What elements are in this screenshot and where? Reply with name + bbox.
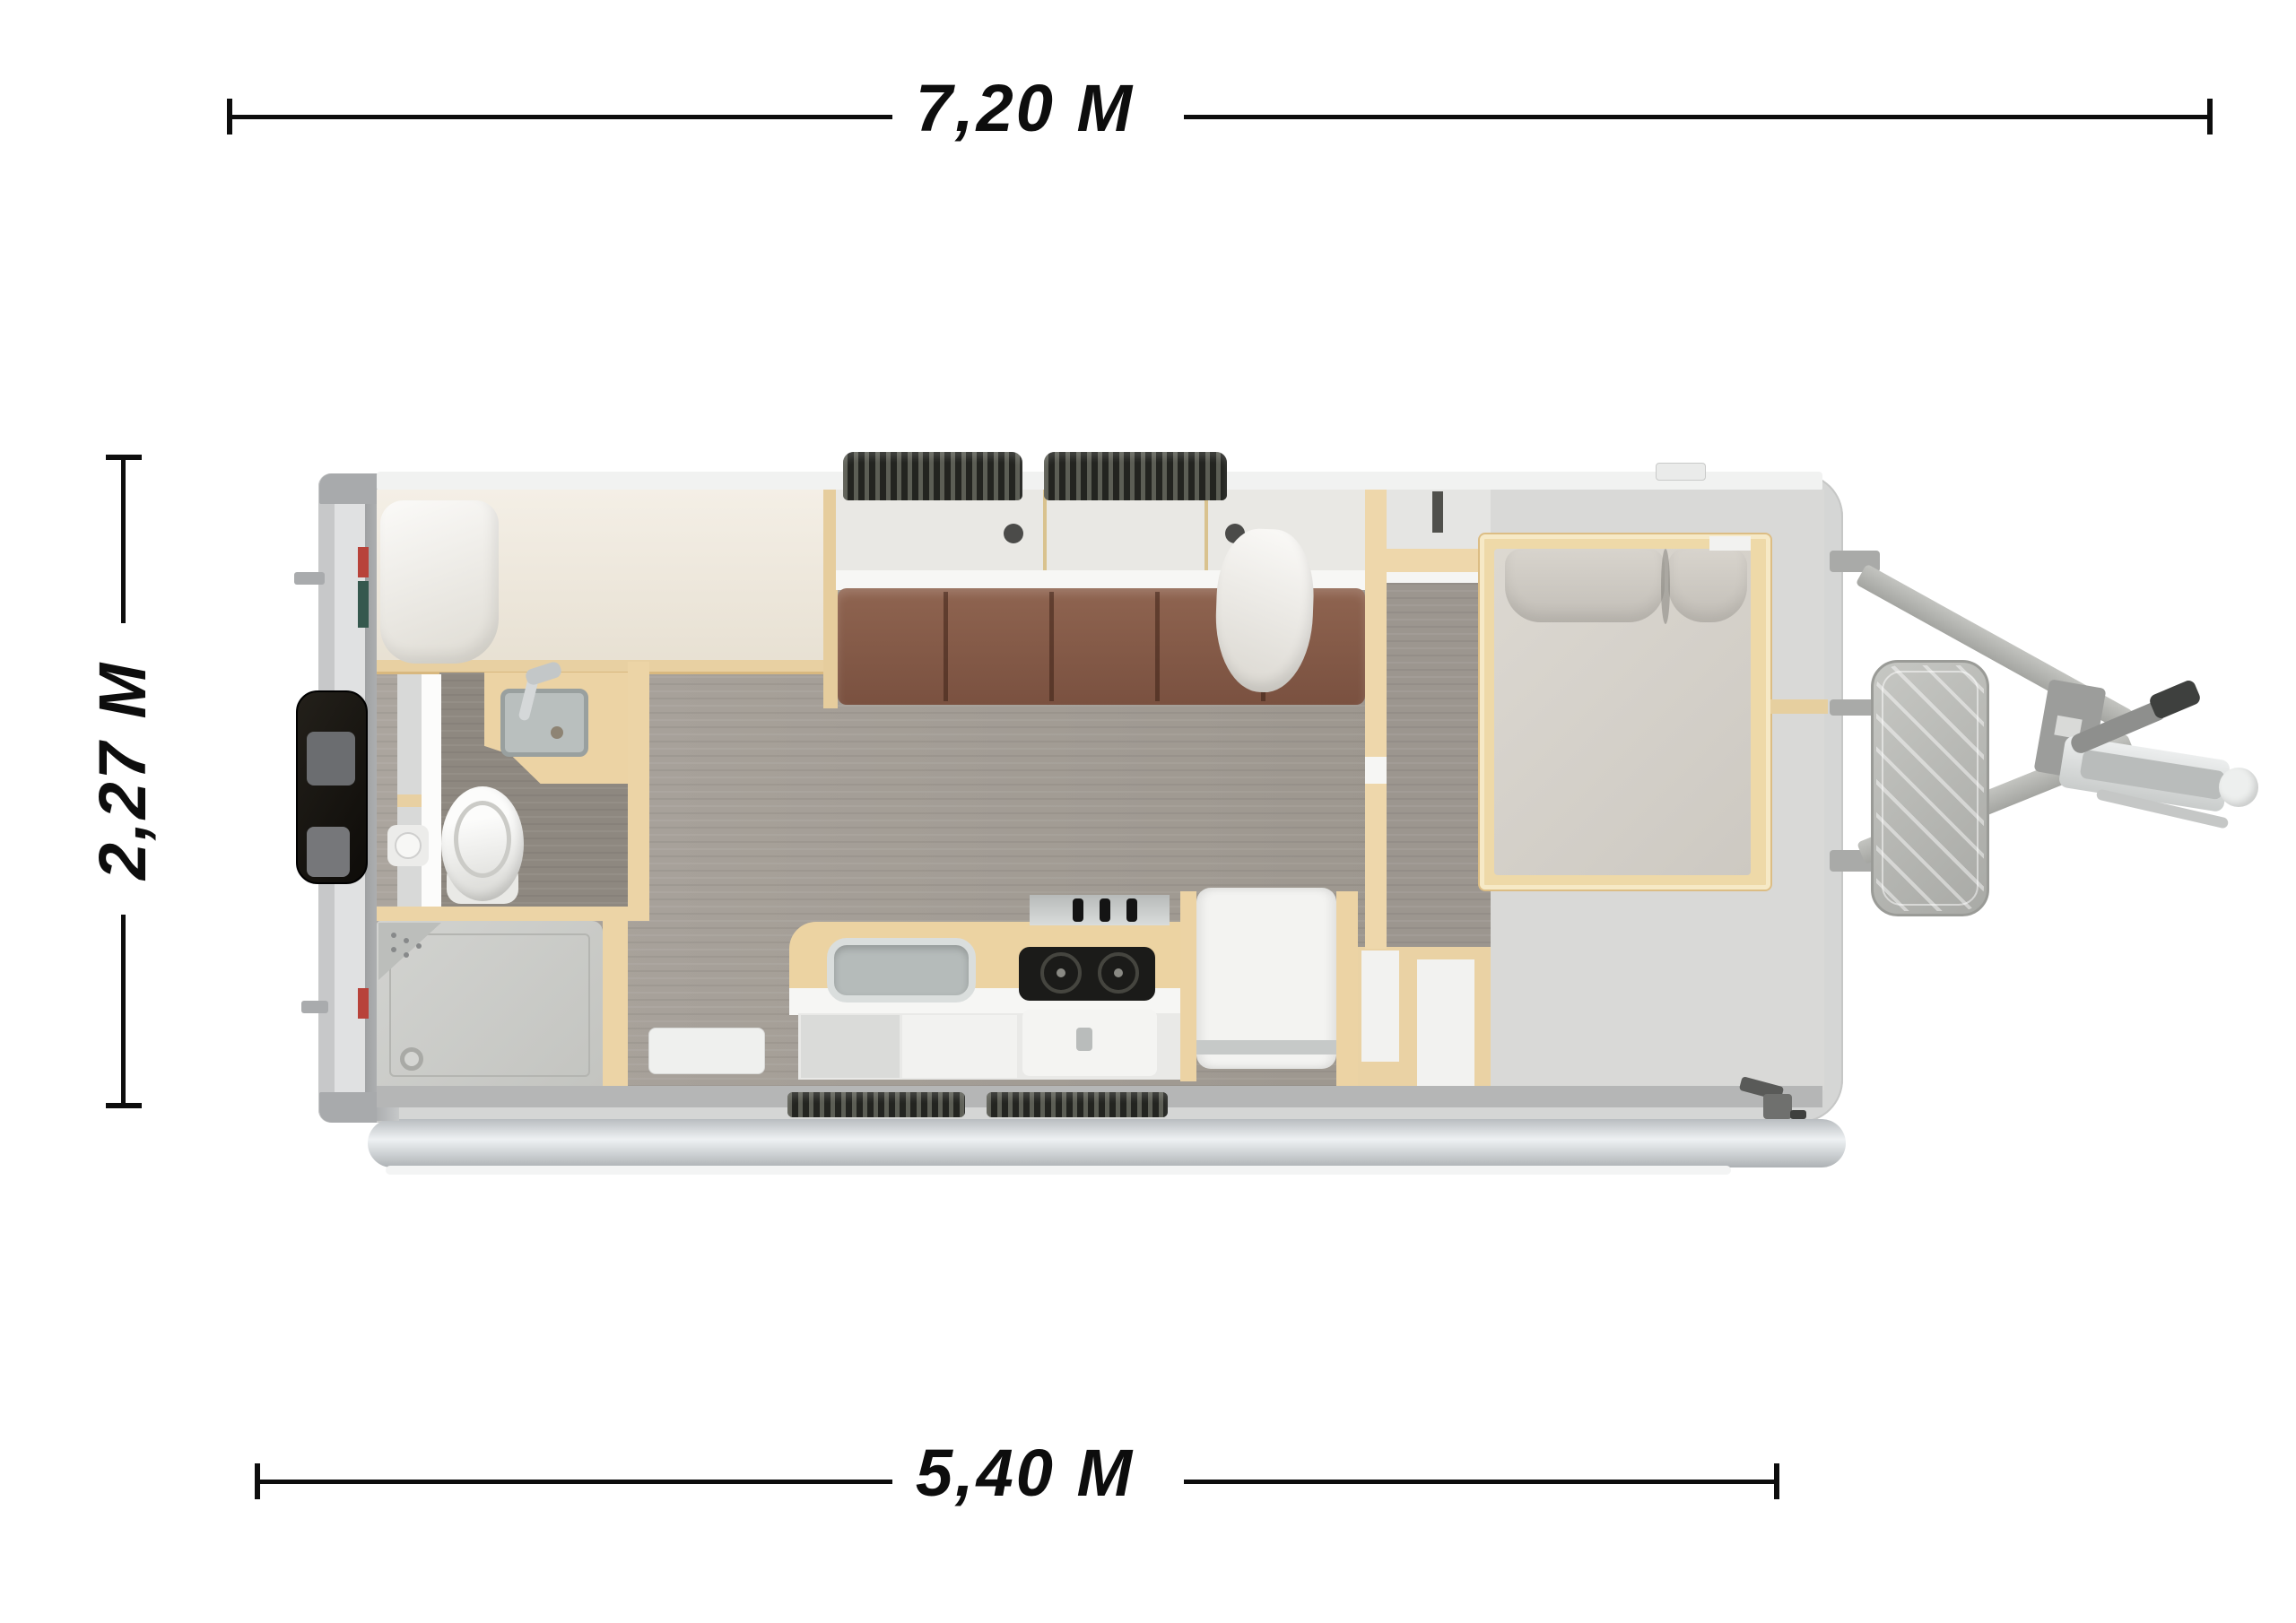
oven-handle	[1076, 1028, 1092, 1051]
rear-hinge-stub-top	[294, 572, 325, 585]
bathroom-sink	[500, 689, 588, 757]
wardrobe-wall	[1365, 490, 1387, 949]
top-dim-line-left	[230, 115, 892, 119]
bedroom-entry-wall-edge	[1387, 572, 1491, 583]
side-rail-underline	[386, 1166, 1731, 1175]
bottom-dim-label: 5,40 M	[865, 1440, 1185, 1506]
bathroom-partition-wall	[422, 674, 441, 915]
rear-storage-box-patch-bottom	[307, 827, 350, 877]
entry-step	[648, 1028, 765, 1074]
bed-pillow-right	[1668, 549, 1747, 622]
top-dim-line-right	[1184, 115, 2210, 119]
kitchen-sink	[827, 938, 976, 1002]
bottom-dim-line-left	[257, 1480, 892, 1484]
shower-shelf-hole	[404, 952, 409, 958]
bench-panel	[1361, 950, 1399, 1062]
left-dim-line-top	[121, 457, 126, 623]
roof-vent	[1656, 463, 1706, 481]
kitchen-divider-wall	[1180, 891, 1196, 1081]
sink-drain	[551, 726, 563, 739]
stove-knob	[1126, 898, 1137, 922]
toilet-seat-ring	[454, 801, 511, 878]
bed-pillow-left	[1505, 549, 1665, 622]
bench-panel	[1417, 959, 1474, 1087]
sofa-backrest-seam-2	[1205, 490, 1208, 572]
hitch-ball-socket	[2219, 768, 2258, 807]
floorplan-canvas: 7,20 M 2,27 M 5,40 M	[0, 0, 2296, 1623]
shower-drain	[400, 1047, 423, 1071]
lower-cabinet-panel	[801, 1015, 900, 1078]
shower-shelf-hole	[416, 943, 422, 949]
bathroom-divider-wall	[377, 907, 649, 921]
wheel-bottom-1	[787, 1092, 965, 1117]
corner-steady-foot	[1763, 1094, 1792, 1119]
shower-shelf-hole	[404, 938, 409, 943]
bed-corner-tag	[1709, 536, 1751, 551]
rear-hinge-stub-bottom	[301, 1001, 328, 1013]
front-shelf-line	[1770, 699, 1828, 714]
door-catch-slot	[1432, 491, 1443, 533]
shower-shelf-hole	[391, 933, 396, 938]
side-rail	[368, 1119, 1846, 1167]
sofa-table-knob-1	[1004, 524, 1023, 543]
wardrobe-wall-door-gap	[1365, 757, 1387, 784]
left-dim-tick-bottom	[106, 1103, 142, 1108]
left-dim-label: 2,27 M	[90, 611, 156, 930]
shower-wall-right	[603, 921, 628, 1089]
lower-cabinet-panel	[902, 1015, 1017, 1078]
wheel-bottom-2	[987, 1092, 1168, 1117]
sofa-cushion-seam	[944, 592, 948, 701]
wheel-top-2	[1044, 452, 1227, 500]
top-dim-label: 7,20 M	[865, 75, 1185, 142]
rear-marker-light-red-top	[358, 547, 369, 577]
bottom-dim-tick-right	[1774, 1463, 1779, 1499]
stove-knob	[1073, 898, 1083, 922]
shower-shelf-hole	[391, 947, 396, 952]
rear-corner-cap-top	[319, 473, 377, 504]
stove-burner-dot	[1057, 968, 1065, 977]
bottom-dim-line-right	[1184, 1480, 1777, 1484]
handbrake-grip	[2148, 679, 2203, 721]
fridge-divider-wall	[1336, 891, 1358, 1089]
rear-marker-light-green	[358, 581, 369, 628]
rear-marker-light-red-bottom	[358, 988, 369, 1019]
wheel-top-1	[843, 452, 1022, 500]
sofa-cushion-seam	[1155, 592, 1160, 701]
bedroom-entry-wall	[1387, 549, 1491, 572]
sofa-backrest-seam-1	[1043, 490, 1047, 572]
stove-burner-dot	[1114, 968, 1123, 977]
toilet-cassette-knob	[395, 832, 422, 859]
left-dim-line-bottom	[121, 915, 126, 1106]
bunk-pillow	[380, 500, 499, 664]
fridge-stripe	[1196, 1040, 1336, 1055]
top-dim-tick-right	[2207, 99, 2213, 135]
rear-storage-box-patch-top	[307, 732, 355, 785]
bathroom-wall-right	[628, 662, 649, 920]
bed-pillow-crease	[1661, 549, 1670, 624]
bathroom-cabinet-shelf	[397, 794, 422, 807]
corner-steady-pad	[1790, 1110, 1806, 1119]
stove-knob	[1100, 898, 1110, 922]
sofa-cushion-seam	[1049, 592, 1054, 701]
rear-corner-cap-bottom	[319, 1092, 377, 1123]
gas-locker-inner-line	[1882, 671, 1979, 906]
